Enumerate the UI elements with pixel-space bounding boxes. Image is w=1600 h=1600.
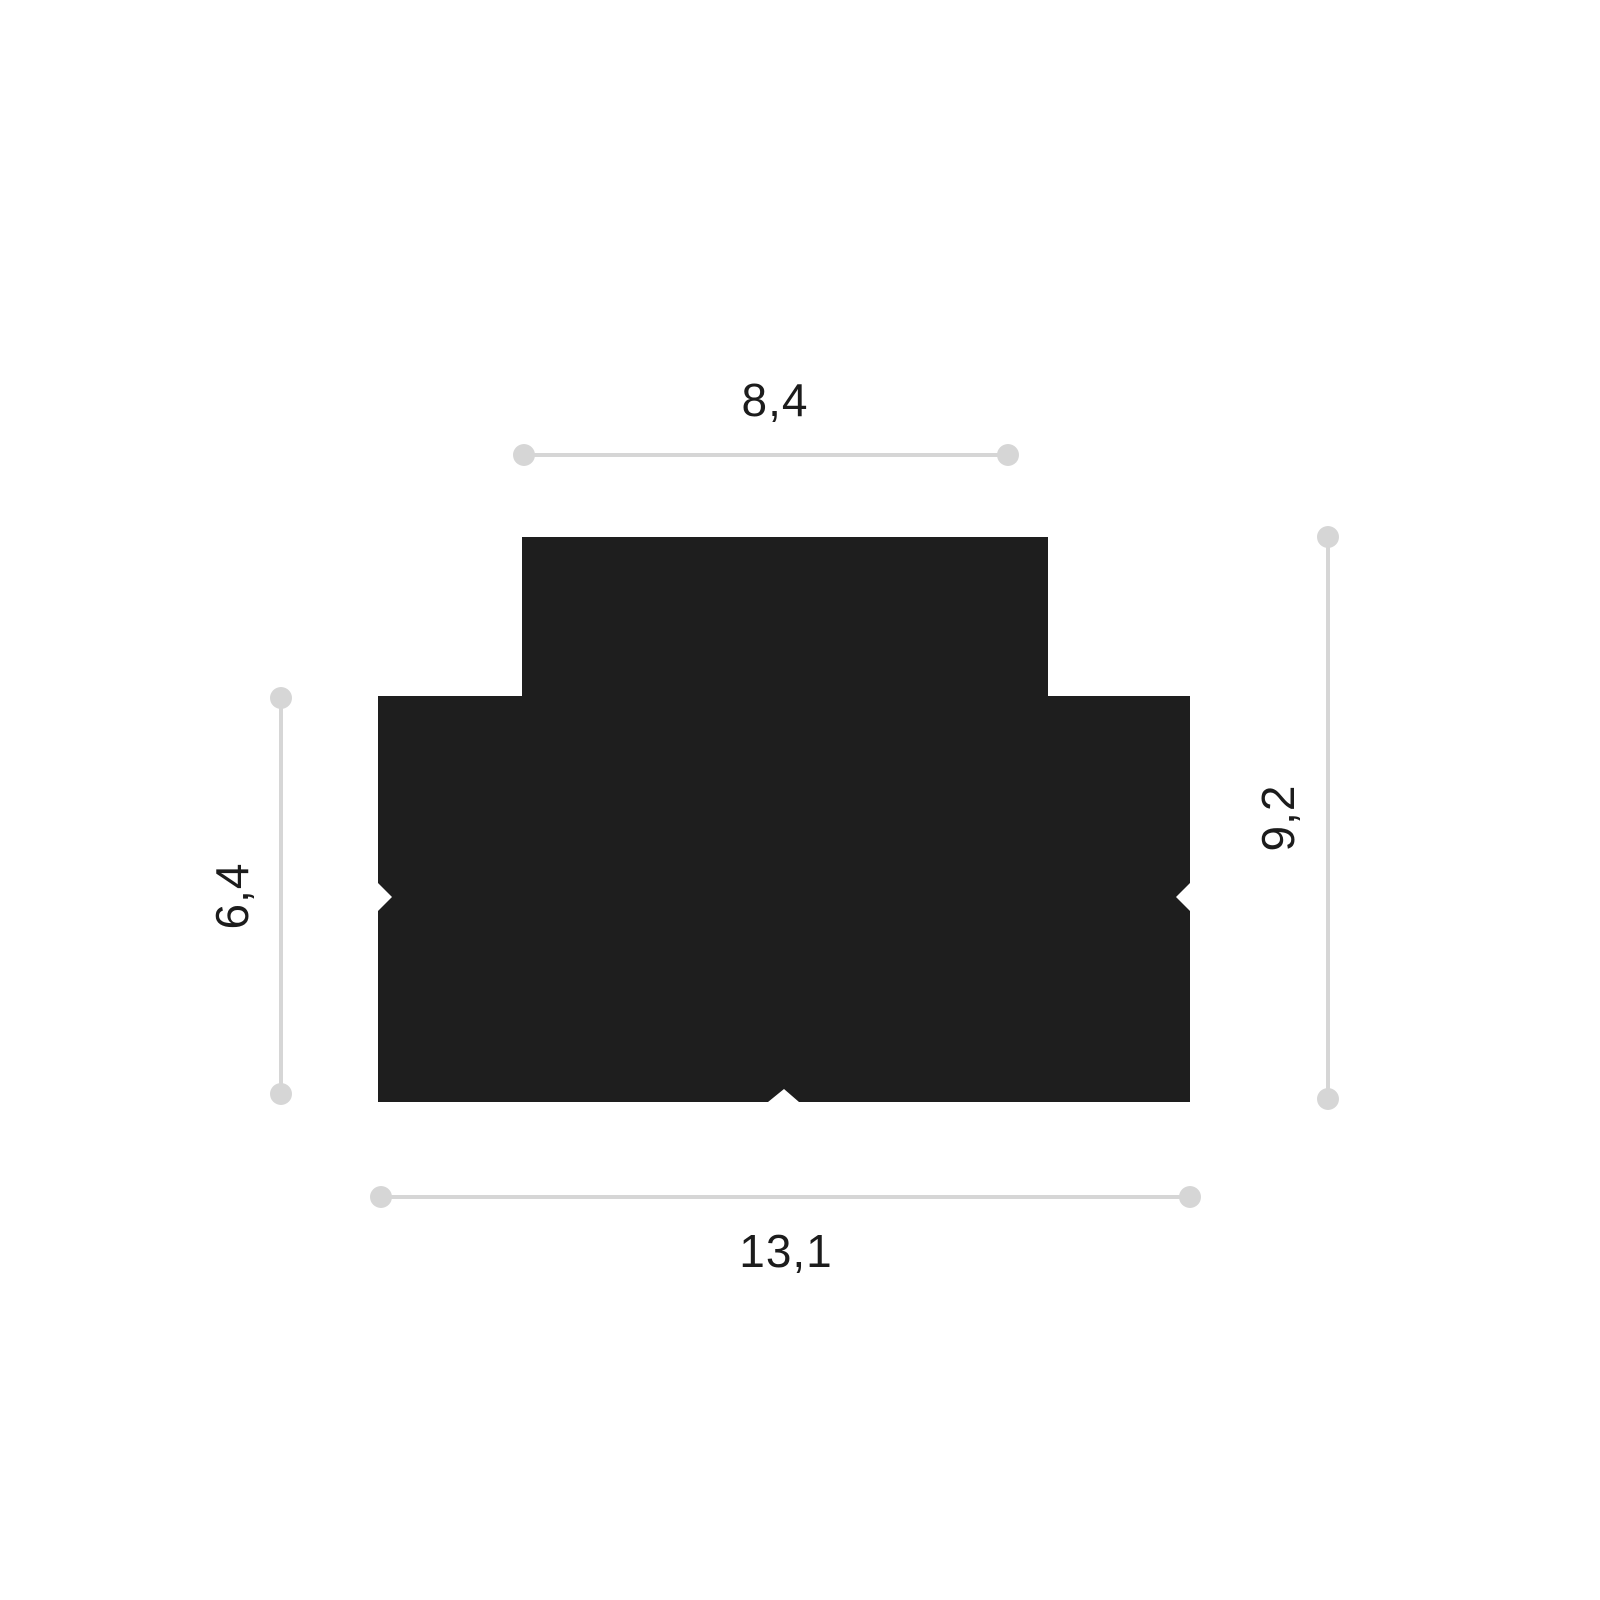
bottom-dimension-endpoint-dot (1179, 1186, 1201, 1208)
dimension-label-bottom-width: 13,1 (739, 1224, 833, 1278)
top-dimension-endpoint-dot (997, 444, 1019, 466)
dimension-label-left-height: 6,4 (205, 863, 259, 930)
right-dimension-endpoint-dot (1317, 526, 1339, 548)
dimension-label-right-height: 9,2 (1251, 785, 1305, 852)
profile-diagram (0, 0, 1600, 1600)
left-dimension-endpoint-dot (270, 1083, 292, 1105)
bottom-dimension-endpoint-dot (370, 1186, 392, 1208)
right-dimension-endpoint-dot (1317, 1088, 1339, 1110)
top-dimension-endpoint-dot (513, 444, 535, 466)
left-dimension-endpoint-dot (270, 687, 292, 709)
diagram-canvas: 8,4 13,1 6,4 9,2 (0, 0, 1600, 1600)
dimension-label-top-width: 8,4 (742, 373, 809, 427)
profile-shape (378, 537, 1190, 1102)
